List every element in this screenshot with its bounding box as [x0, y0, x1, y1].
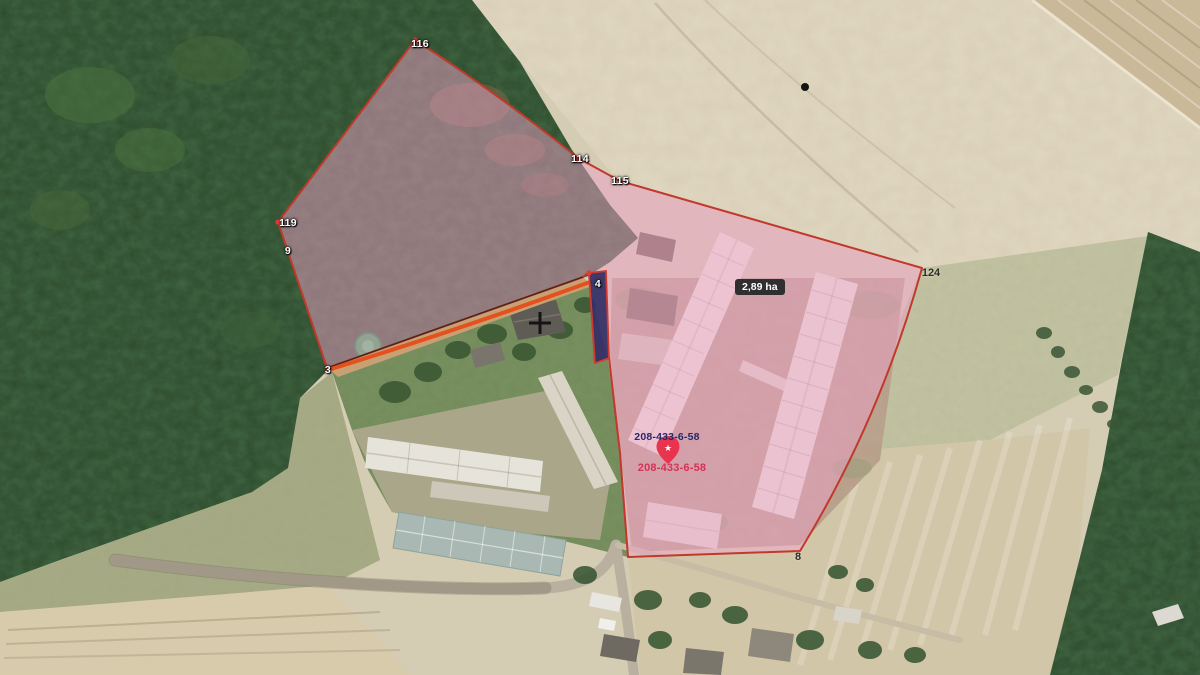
aerial-map: ★ [0, 0, 1200, 675]
map-point-dot [801, 83, 809, 91]
parcel-id-label-bottom: 208-433-6-58 [638, 462, 706, 474]
map-canvas[interactable]: ★ 116 114 115 119 9 3 4 124 8 2,89 ha 20… [0, 0, 1200, 675]
area-badge: 2,89 ha [735, 279, 785, 295]
parcel-id-label-top: 208-433-6-58 [634, 431, 699, 443]
star-icon: ★ [664, 443, 672, 453]
